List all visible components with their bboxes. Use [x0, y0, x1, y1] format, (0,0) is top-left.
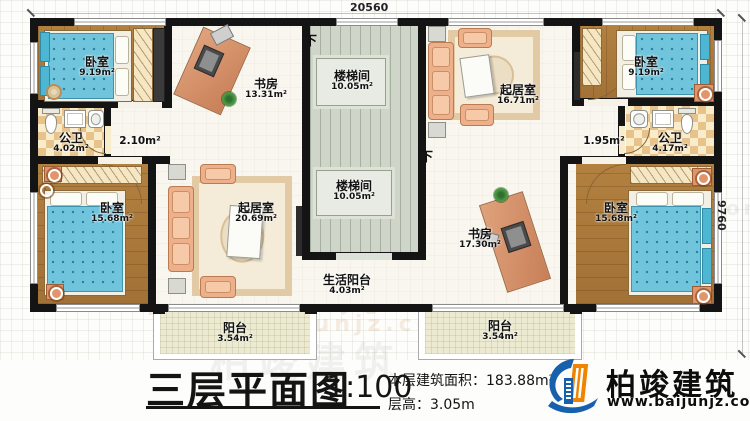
- wall: [148, 164, 156, 304]
- nightstand: [692, 168, 712, 186]
- room-label-service-balcony: 生活阳台 4.03m²: [323, 274, 371, 296]
- sofa: [168, 186, 194, 272]
- dimension-depth: 9760: [715, 200, 728, 231]
- bed-cushion: [700, 34, 710, 60]
- room-area: 16.71m²: [497, 97, 539, 106]
- wall: [164, 26, 172, 108]
- stair-down-label: 下: [304, 30, 317, 49]
- sink: [630, 110, 648, 128]
- dimension-line: [30, 13, 722, 14]
- hall-right-area: 1.95m²: [583, 136, 624, 147]
- bed-mattress: [631, 206, 701, 292]
- wall: [305, 304, 317, 314]
- plant: [222, 92, 236, 106]
- window: [596, 304, 700, 312]
- room-area: 9.19m²: [628, 69, 664, 78]
- door-opening: [336, 253, 392, 260]
- window: [602, 18, 694, 26]
- room-area: 13.31m²: [245, 91, 287, 100]
- room-area: 17.30m²: [459, 241, 501, 250]
- room-area: 3.54m²: [217, 335, 253, 344]
- door-opening: [582, 157, 626, 164]
- wall: [570, 304, 582, 314]
- nightstand: [46, 284, 64, 300]
- nightstand: [44, 188, 46, 190]
- room-name: 书房: [245, 78, 287, 91]
- window: [714, 40, 722, 92]
- room-area: 3.54m²: [482, 333, 518, 342]
- armchair: [200, 276, 236, 298]
- room-name: 楼梯间: [331, 70, 373, 83]
- room-name: 楼梯间: [333, 180, 375, 193]
- hall-left-area: 2.10m²: [119, 136, 160, 147]
- sofa: [428, 42, 454, 120]
- bed-cushion: [702, 208, 712, 244]
- window: [30, 42, 38, 94]
- side-table: [428, 122, 446, 138]
- room-label-bedroom-tl: 卧室 9.19m²: [79, 56, 115, 78]
- room-label-study-tl: 书房 13.31m²: [245, 78, 287, 100]
- room-label-stair-bottom: 楼梯间 10.05m²: [333, 180, 375, 202]
- title-underline: [146, 406, 380, 409]
- plant: [494, 188, 508, 202]
- side-table: [168, 164, 186, 180]
- room-label-bath-right: 公卫 4.17m²: [652, 132, 688, 154]
- room-area: 2.10m²: [119, 136, 160, 147]
- floor-plan-canvas: 柏竣建筑 www.baijunjz.com 柏竣建筑 www.baijunjz.…: [0, 0, 750, 421]
- room-area: 1.95m²: [583, 136, 624, 147]
- room-label-stair-top: 楼梯间 10.05m²: [331, 70, 373, 92]
- bath-cabinet: [652, 110, 674, 128]
- room-name: 阳台: [217, 322, 253, 335]
- bed-pillow: [636, 192, 668, 206]
- wall: [302, 26, 310, 260]
- bed-pillow: [115, 36, 129, 64]
- room-label-living-tr: 起居室 16.71m²: [497, 84, 539, 106]
- room-name: 卧室: [79, 56, 115, 69]
- bed-pillow: [50, 192, 82, 206]
- wall: [418, 26, 426, 260]
- bed-cushion: [40, 32, 50, 62]
- room-label-bath-left: 公卫 4.02m²: [53, 132, 89, 154]
- dimension-line: [742, 18, 743, 354]
- room-area: 10.05m²: [333, 193, 375, 202]
- tv: [574, 52, 580, 100]
- room-label-bedroom-tr: 卧室 9.19m²: [628, 56, 664, 78]
- wardrobe: [133, 28, 153, 102]
- door-opening: [584, 99, 628, 106]
- bed-pillow: [672, 192, 704, 206]
- armchair: [458, 28, 492, 48]
- floor-area-text: 本层建筑面积：183.88m²: [388, 370, 554, 390]
- door-opening: [118, 101, 162, 108]
- room-label-balcony-left: 阳台 3.54m²: [217, 322, 253, 344]
- room-label-living-center: 起居室 20.69m²: [235, 202, 277, 224]
- window: [336, 18, 398, 26]
- room-area: 10.05m²: [331, 83, 373, 92]
- room-name: 公卫: [652, 132, 688, 145]
- side-table: [168, 278, 186, 294]
- bath-cabinet: [64, 110, 86, 128]
- room-area: 4.03m²: [323, 287, 371, 296]
- company-website: www.baijunjz.com: [607, 394, 750, 410]
- room-name: 卧室: [595, 202, 637, 215]
- room-name: 起居室: [497, 84, 539, 97]
- room-area: 4.02m²: [53, 145, 89, 154]
- room-area: 20.69m²: [235, 215, 277, 224]
- logo-glyph: [544, 356, 602, 416]
- floor-height-text: 层高：3.05m: [388, 394, 475, 414]
- window: [56, 304, 140, 312]
- bed-cushion: [702, 248, 712, 284]
- room-label-bedroom-mr: 卧室 15.68m²: [595, 202, 637, 224]
- room-name: 起居室: [235, 202, 277, 215]
- nightstand: [692, 286, 712, 304]
- room-label-bedroom-ml: 卧室 15.68m²: [91, 202, 133, 224]
- stair-down-label: 下: [420, 146, 433, 165]
- wardrobe: [582, 28, 602, 86]
- room-name: 书房: [459, 228, 501, 241]
- room-name: 卧室: [628, 56, 664, 69]
- door-opening: [98, 157, 142, 164]
- room-name: 生活阳台: [323, 274, 371, 287]
- side-table: [428, 26, 446, 42]
- cabinet: [153, 28, 165, 102]
- room-label-balcony-right: 阳台 3.54m²: [482, 320, 518, 342]
- room-name: 阳台: [482, 320, 518, 333]
- company-logo-icon: [544, 356, 602, 416]
- round-stool: [46, 84, 62, 100]
- nightstand: [694, 84, 714, 102]
- room-area: 15.68m²: [595, 215, 637, 224]
- room-area: 9.19m²: [79, 69, 115, 78]
- balcony-sliding-door: [432, 304, 564, 312]
- toilet: [42, 108, 60, 134]
- wall: [153, 304, 165, 314]
- room-label-study-br: 书房 17.30m²: [459, 228, 501, 250]
- armchair: [460, 104, 494, 126]
- coffee-table: [459, 54, 494, 98]
- balcony-sliding-door: [168, 304, 300, 312]
- tv: [296, 206, 302, 256]
- bed-pillow: [115, 68, 129, 96]
- sink: [88, 110, 104, 128]
- room-name: 卧室: [91, 202, 133, 215]
- room-area: 4.17m²: [652, 145, 688, 154]
- wall: [560, 164, 568, 304]
- armchair: [200, 164, 236, 184]
- room-name: 公卫: [53, 132, 89, 145]
- window: [74, 18, 166, 26]
- window: [448, 18, 544, 26]
- nightstand: [44, 166, 62, 182]
- window: [30, 192, 38, 284]
- room-area: 15.68m²: [91, 215, 133, 224]
